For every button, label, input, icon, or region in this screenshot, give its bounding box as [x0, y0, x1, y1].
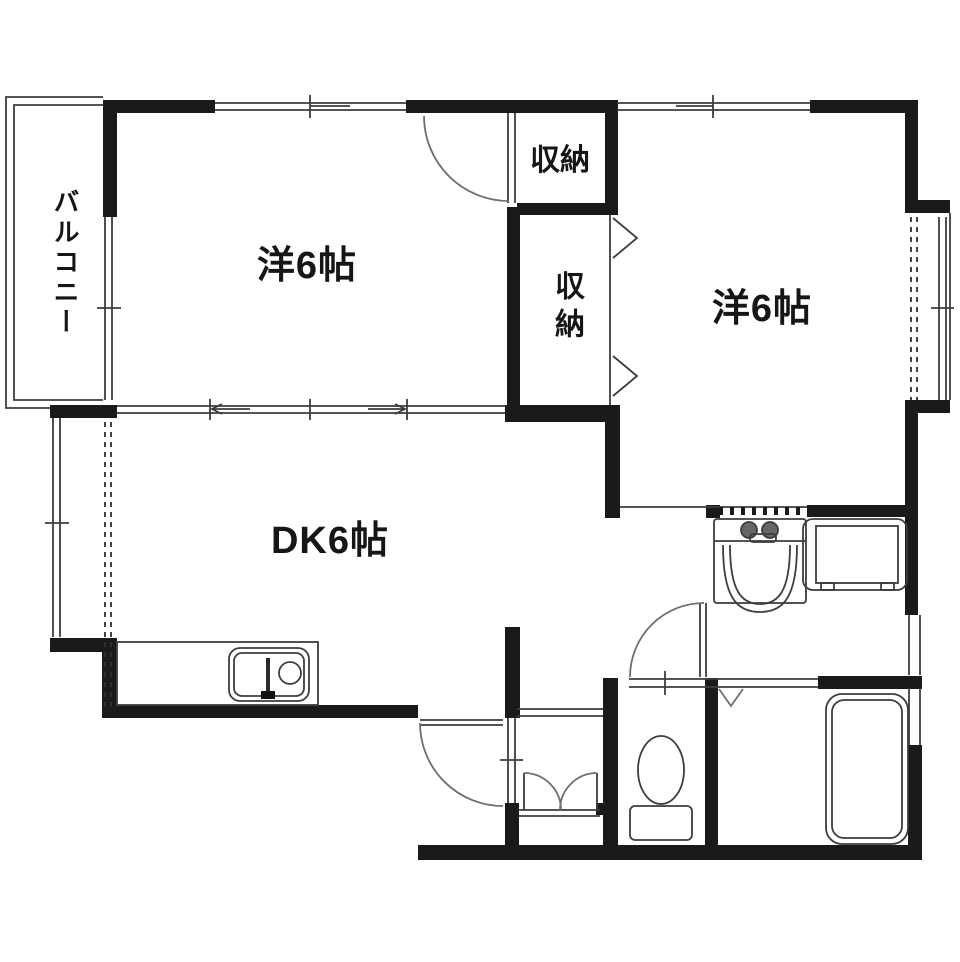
western-room-left-label: 洋6帖	[217, 246, 397, 288]
floor-plan-svg	[0, 0, 960, 962]
windows	[45, 95, 954, 745]
washbasin-fixture	[714, 519, 806, 612]
closet-door-left-room	[424, 113, 515, 203]
balcony-label: バルコニー	[31, 168, 79, 358]
sliding-partition	[117, 399, 505, 420]
washroom-door-swing	[629, 603, 818, 695]
storage-middle-label: 収納	[538, 258, 583, 358]
accordion-teeth	[719, 507, 800, 515]
bath-folding-door-mark	[719, 689, 743, 706]
dining-kitchen-label: DK6帖	[240, 521, 420, 563]
entrance-door-swing	[420, 720, 503, 806]
bathtub-fixture	[826, 694, 908, 844]
western-room-right-label: 洋6帖	[672, 289, 852, 331]
floor-plan: バルコニー 洋6帖 収納 収納 洋6帖 DK6帖	[0, 0, 960, 962]
shoe-closet-doors	[524, 773, 597, 810]
storage-top-label: 収納	[510, 144, 610, 177]
genkan-lines	[500, 709, 603, 816]
washing-machine-pan-fixture	[803, 519, 907, 590]
walls	[50, 100, 950, 860]
closet-bifold-doors	[610, 215, 637, 405]
kitchen-sink-fixture	[117, 642, 318, 705]
toilet-fixture	[630, 736, 692, 840]
